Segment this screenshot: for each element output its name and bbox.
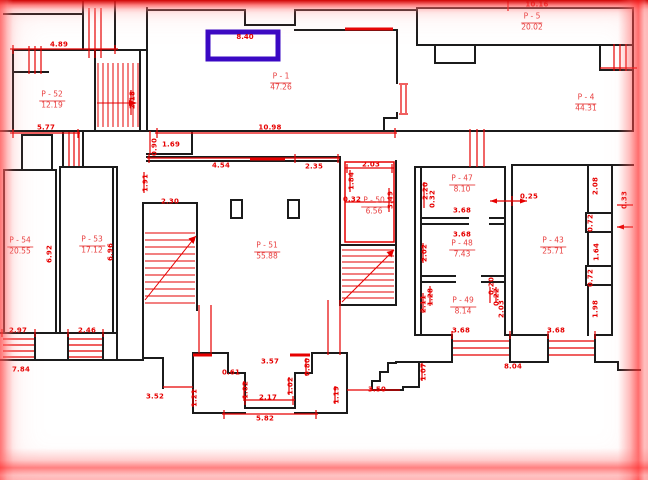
walls-top-left xyxy=(0,2,147,131)
door-lines xyxy=(163,84,496,387)
walls-room-p51 xyxy=(143,157,396,388)
walls-rooms-p5-p4 xyxy=(384,8,633,131)
floor-plan-canvas: 8.40 4.8910.162.185.770.901.6910.984.542… xyxy=(0,0,648,480)
stair-diagonal xyxy=(342,250,394,302)
dimension-lines-layer xyxy=(2,1,637,419)
walls-south-facade xyxy=(372,335,640,390)
floor-plan-svg xyxy=(0,0,648,480)
stair-treads xyxy=(98,63,138,127)
arrow-head xyxy=(617,225,624,230)
thick-red-marks xyxy=(193,29,393,355)
walls-room-p43 xyxy=(512,165,633,335)
column-rect xyxy=(231,200,242,218)
arrow-head xyxy=(490,199,497,204)
walls-rooms-p54-p53 xyxy=(0,131,143,360)
pier-rect xyxy=(586,213,612,232)
column-rect xyxy=(288,200,299,218)
selection-highlight-rect[interactable] xyxy=(208,32,278,59)
walls-portico xyxy=(193,353,347,413)
arrow-head xyxy=(520,199,527,204)
dimension-lines xyxy=(2,1,633,419)
walls-rooms-p47-p48-p49 xyxy=(415,165,612,335)
pier-rect xyxy=(586,266,612,285)
window-lines xyxy=(3,8,637,357)
